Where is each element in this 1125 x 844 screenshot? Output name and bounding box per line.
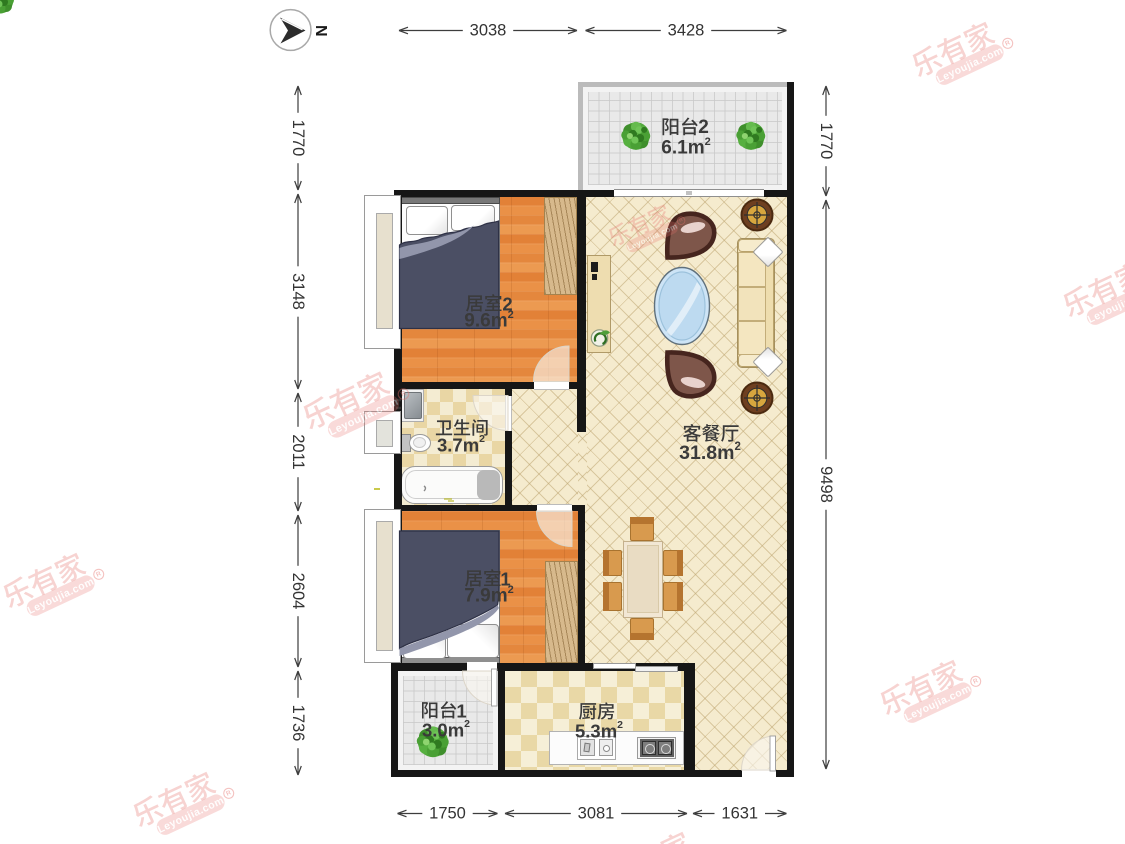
- svg-text:7.9m2: 7.9m2: [464, 584, 513, 607]
- svg-text:1770: 1770: [817, 123, 835, 160]
- svg-text:3148: 3148: [289, 273, 307, 310]
- svg-text:31.8m2: 31.8m2: [679, 441, 741, 464]
- svg-text:3.0m2: 3.0m2: [422, 718, 470, 741]
- svg-text:2011: 2011: [289, 434, 307, 469]
- svg-text:5.3m2: 5.3m2: [575, 719, 623, 742]
- svg-text:N: N: [312, 25, 329, 37]
- svg-text:3038: 3038: [470, 22, 507, 40]
- svg-text:3.7m2: 3.7m2: [437, 433, 485, 456]
- svg-text:3428: 3428: [668, 22, 705, 40]
- svg-text:1770: 1770: [289, 120, 307, 157]
- svg-text:3081: 3081: [578, 805, 615, 823]
- svg-text:1736: 1736: [289, 705, 307, 742]
- svg-text:9498: 9498: [817, 466, 835, 503]
- svg-text:2: 2: [698, 117, 709, 138]
- svg-text:1750: 1750: [429, 805, 466, 823]
- svg-text:1631: 1631: [721, 805, 758, 823]
- svg-text:2604: 2604: [289, 573, 307, 610]
- svg-text:9.6m2: 9.6m2: [464, 309, 513, 332]
- svg-text:6.1m2: 6.1m2: [661, 136, 710, 159]
